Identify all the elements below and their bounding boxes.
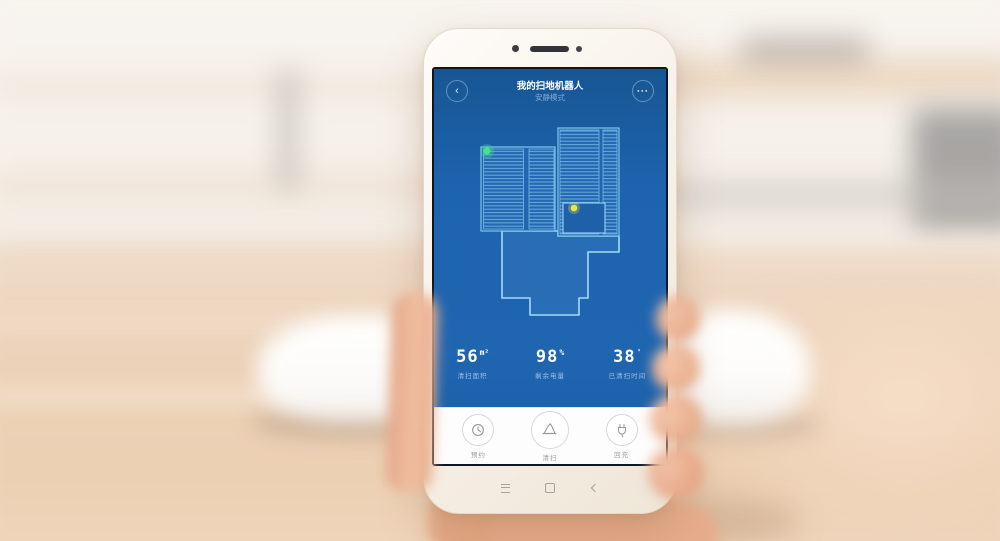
background-dark-objects (740, 38, 870, 62)
clean-button[interactable]: 清扫 (531, 411, 569, 462)
background-gray-box (912, 108, 1000, 228)
proximity-sensor-icon (576, 46, 582, 52)
schedule-clock-icon (462, 414, 494, 446)
map-svg (434, 113, 666, 345)
dock-button[interactable]: 回充 (606, 414, 638, 459)
more-button[interactable]: ●●● (632, 80, 654, 102)
stat-battery-value: 98% (511, 349, 588, 366)
robot-marker (568, 202, 580, 214)
background-table-top (640, 58, 1000, 98)
cleaning-map[interactable] (434, 113, 666, 347)
schedule-button[interactable]: 预约 (462, 414, 494, 459)
back-key-icon[interactable] (586, 480, 604, 496)
front-camera-icon (512, 45, 519, 52)
floor-plank-line-2 (0, 392, 420, 400)
phone-screen: ‹ 我的扫地机器人 安静模式 ●●● (432, 67, 668, 466)
capacitive-navbar (424, 471, 676, 505)
mode-subtitle: 安静模式 (434, 92, 666, 103)
stat-area: 56m² 清扫面积 (434, 349, 511, 380)
stat-time-value: 38' (589, 349, 666, 366)
background-chair-leg (278, 70, 298, 190)
action-bar: 预约 清扫 (434, 407, 666, 464)
stats-row: 56m² 清扫面积 98% 剩余电量 38' 已清扫时间 (434, 347, 666, 407)
map-room-right (558, 128, 619, 236)
app-header: ‹ 我的扫地机器人 安静模式 ●●● (434, 69, 666, 113)
dock-plug-icon (606, 414, 638, 446)
robot-vacuum-right-shadow (652, 412, 822, 438)
home-key-icon[interactable] (541, 480, 559, 496)
stat-area-value: 56m² (434, 349, 511, 366)
map-room-left (481, 147, 555, 231)
smartphone: ‹ 我的扫地机器人 安静模式 ●●● (423, 28, 677, 514)
stat-area-label: 清扫面积 (434, 370, 511, 380)
product-photo-scene: { "header": { "title": "我的扫地机器人", "subti… (0, 0, 1000, 541)
background-gray-band (640, 182, 1000, 208)
stat-time: 38' 已清扫时间 (589, 349, 666, 380)
dock-marker (480, 144, 494, 158)
floor-sheen (700, 300, 1000, 540)
map-uncleaned-area (502, 231, 619, 315)
clean-icon (531, 411, 569, 449)
earpiece-speaker (530, 46, 569, 52)
vacuum-app: ‹ 我的扫地机器人 安静模式 ●●● (434, 69, 666, 464)
menu-key-icon[interactable] (496, 480, 514, 496)
floor-plank-line-1 (0, 320, 410, 326)
stat-time-label: 已清扫时间 (589, 370, 666, 380)
stat-battery-label: 剩余电量 (511, 370, 588, 380)
stat-battery: 98% 剩余电量 (511, 349, 588, 380)
more-icon: ●●● (637, 89, 649, 93)
